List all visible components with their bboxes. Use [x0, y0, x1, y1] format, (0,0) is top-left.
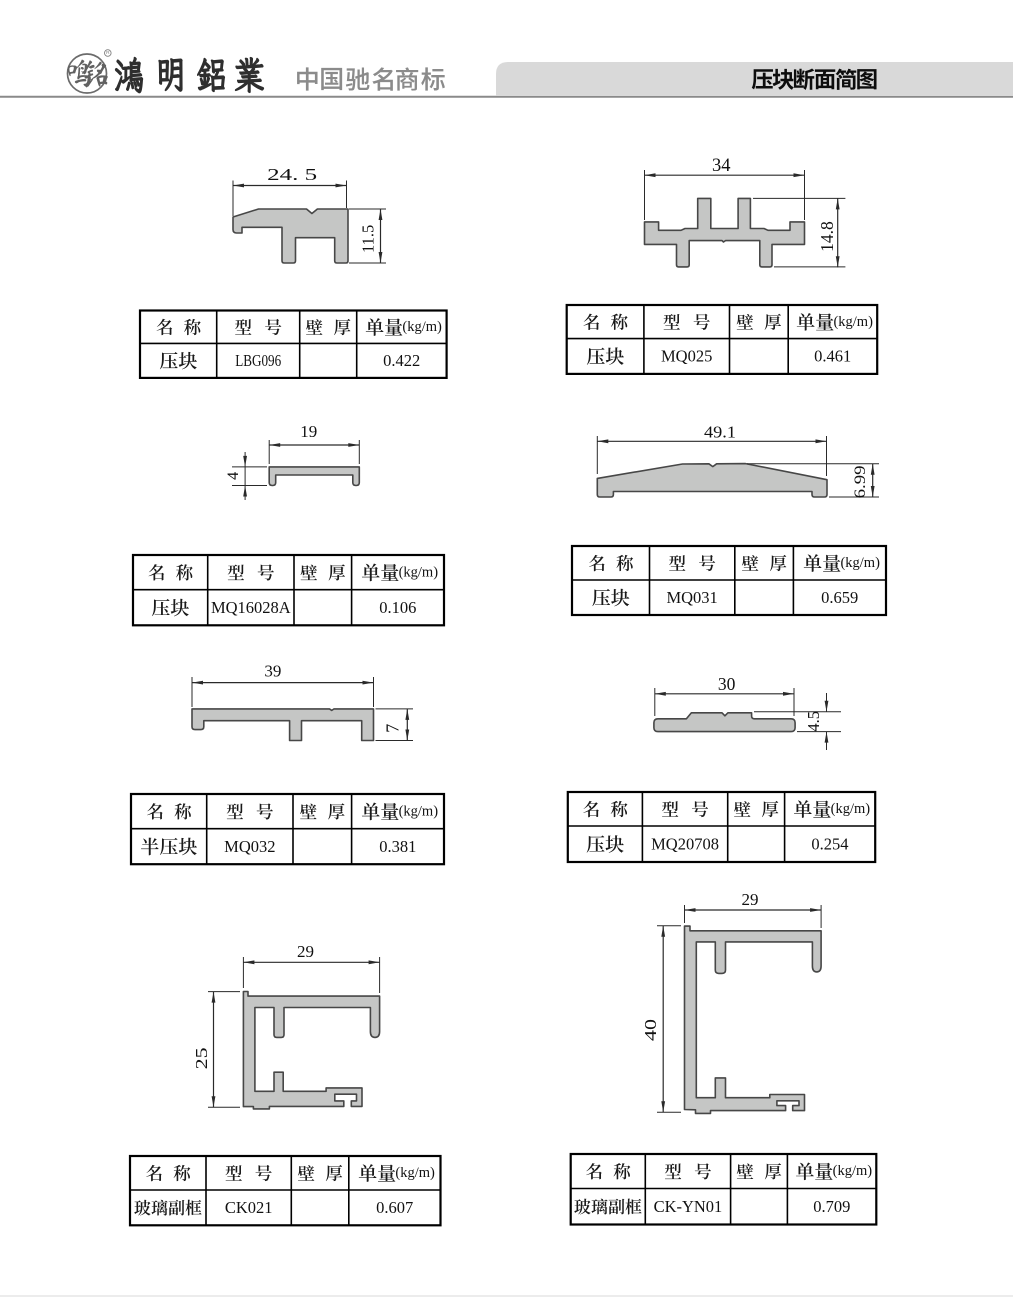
- svg-text:29: 29: [742, 890, 759, 909]
- svg-text:29: 29: [297, 942, 314, 961]
- svg-text:4.5: 4.5: [804, 711, 823, 732]
- svg-text:24. 5: 24. 5: [267, 165, 317, 184]
- svg-text:40: 40: [641, 1019, 660, 1041]
- svg-text:(kg/m): (kg/m): [399, 803, 439, 819]
- svg-text:39: 39: [264, 662, 281, 681]
- svg-text:14.8: 14.8: [817, 221, 837, 252]
- svg-text:LBG096: LBG096: [235, 351, 281, 370]
- svg-text:6.99: 6.99: [852, 465, 869, 498]
- svg-text:(kg/m): (kg/m): [840, 555, 880, 571]
- svg-text:0.607: 0.607: [376, 1198, 413, 1217]
- svg-text:(kg/m): (kg/m): [831, 801, 871, 817]
- svg-text:CK-YN01: CK-YN01: [654, 1197, 723, 1216]
- svg-text:0.709: 0.709: [813, 1197, 850, 1216]
- svg-text:0.461: 0.461: [814, 347, 851, 366]
- svg-text:(kg/m): (kg/m): [399, 564, 439, 580]
- svg-text:11.5: 11.5: [358, 225, 377, 253]
- svg-text:4: 4: [225, 472, 242, 480]
- svg-text:(kg/m): (kg/m): [402, 319, 442, 335]
- svg-text:0.659: 0.659: [821, 588, 858, 607]
- svg-text:7: 7: [383, 724, 403, 733]
- svg-text:34: 34: [712, 156, 731, 176]
- svg-text:MQ025: MQ025: [661, 347, 712, 366]
- svg-text:(kg/m): (kg/m): [833, 1163, 873, 1179]
- svg-text:0.381: 0.381: [379, 837, 416, 856]
- svg-text:0.422: 0.422: [383, 351, 420, 370]
- svg-text:49.1: 49.1: [704, 422, 736, 441]
- svg-text:R: R: [106, 50, 110, 56]
- svg-text:19: 19: [300, 422, 317, 441]
- svg-text:(kg/m): (kg/m): [395, 1165, 435, 1181]
- svg-text:MQ16028A: MQ16028A: [211, 598, 291, 617]
- svg-text:MQ032: MQ032: [224, 837, 275, 856]
- svg-text:0.106: 0.106: [379, 598, 416, 617]
- svg-text:(kg/m): (kg/m): [833, 314, 873, 330]
- svg-text:CK021: CK021: [225, 1198, 273, 1217]
- svg-text:25: 25: [192, 1047, 211, 1069]
- svg-text:MQ031: MQ031: [666, 588, 717, 607]
- svg-text:0.254: 0.254: [811, 835, 848, 854]
- svg-text:30: 30: [718, 674, 736, 694]
- svg-text:MQ20708: MQ20708: [651, 835, 719, 854]
